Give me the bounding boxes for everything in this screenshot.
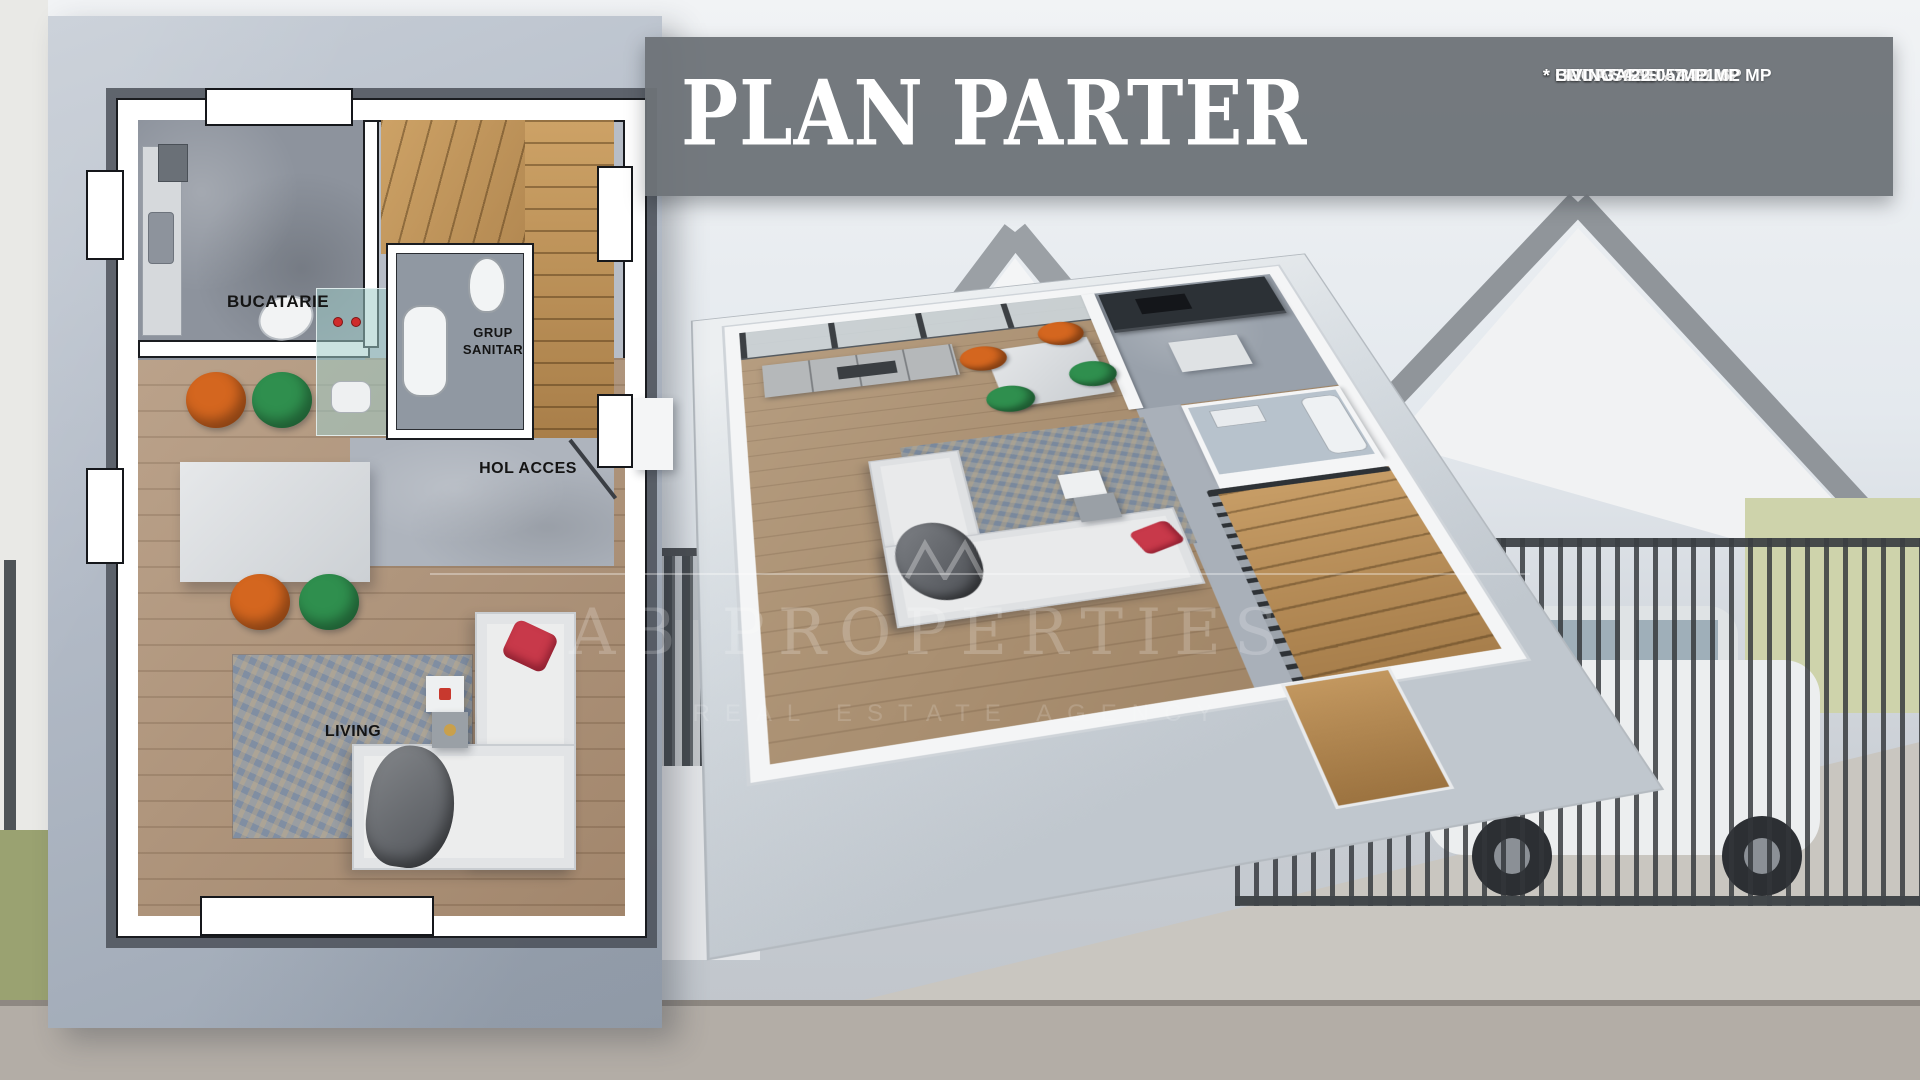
plan2d-interior: BUCATARIE GRUP SANITAR HOL ACCES LIVING: [138, 120, 625, 916]
room-hall: [350, 438, 614, 566]
bathtub: [402, 305, 448, 397]
green-chair: [252, 372, 312, 428]
green-chair: [299, 574, 359, 630]
window-left-lower: [86, 468, 124, 564]
tv-unit: [837, 361, 898, 380]
orange-chair: [186, 372, 246, 428]
bathtub: [1299, 394, 1370, 455]
window-left-upper: [86, 170, 124, 260]
title-banner: PLAN PARTER * HOL ACCES - 2.99 MP * GRUP…: [645, 37, 1893, 196]
decor-bowl: [444, 724, 456, 736]
window-bottom: [200, 896, 434, 936]
kitchen-sink: [148, 212, 174, 264]
window-right: [597, 166, 633, 262]
cooktop: [1135, 294, 1192, 315]
orange-chair: [230, 574, 290, 630]
kitchen-appliance: [158, 144, 188, 182]
decor-red: [439, 688, 451, 700]
entry-door: [597, 394, 633, 468]
bathroom-label: GRUP SANITAR: [450, 324, 536, 358]
toilet: [468, 257, 506, 313]
left-greenery: [0, 830, 48, 1015]
plan-title: PLAN PARTER: [681, 69, 1308, 159]
coffee-table-gray: [1073, 493, 1122, 523]
dining-table: [180, 462, 370, 582]
kitchen-label: BUCATARIE: [178, 292, 378, 312]
bathroom-sink: [1209, 405, 1267, 428]
coffee-table-white: [1057, 470, 1107, 499]
window-top: [205, 88, 353, 126]
hall-label: HOL ACCES: [458, 460, 598, 478]
stair-railing-handrail: [1206, 466, 1391, 496]
left-fence-post: [4, 560, 16, 830]
plan3d-sofa-section: [868, 450, 999, 624]
plan3d-rug: [900, 417, 1197, 581]
stair-railing-posts: [1207, 492, 1304, 682]
plan3d-sofa-section: [883, 507, 1206, 628]
area-item-living: * LIVING - 22.05 MP: [1543, 63, 1707, 88]
living-label: LIVING: [288, 723, 418, 741]
coffee-table-gray: [432, 712, 468, 748]
entry-stoop: [633, 398, 673, 470]
poster-canvas: BUCATARIE GRUP SANITAR HOL ACCES LIVING …: [0, 0, 1920, 1080]
cooktop-knob: [351, 317, 361, 327]
floor-plan-2d: BUCATARIE GRUP SANITAR HOL ACCES LIVING: [118, 100, 645, 936]
cooktop-knob: [333, 317, 343, 327]
red-pillow: [1128, 519, 1186, 555]
island-basin: [331, 381, 371, 413]
gray-throw-blanket: [885, 516, 994, 609]
coffee-table-white: [426, 676, 464, 712]
